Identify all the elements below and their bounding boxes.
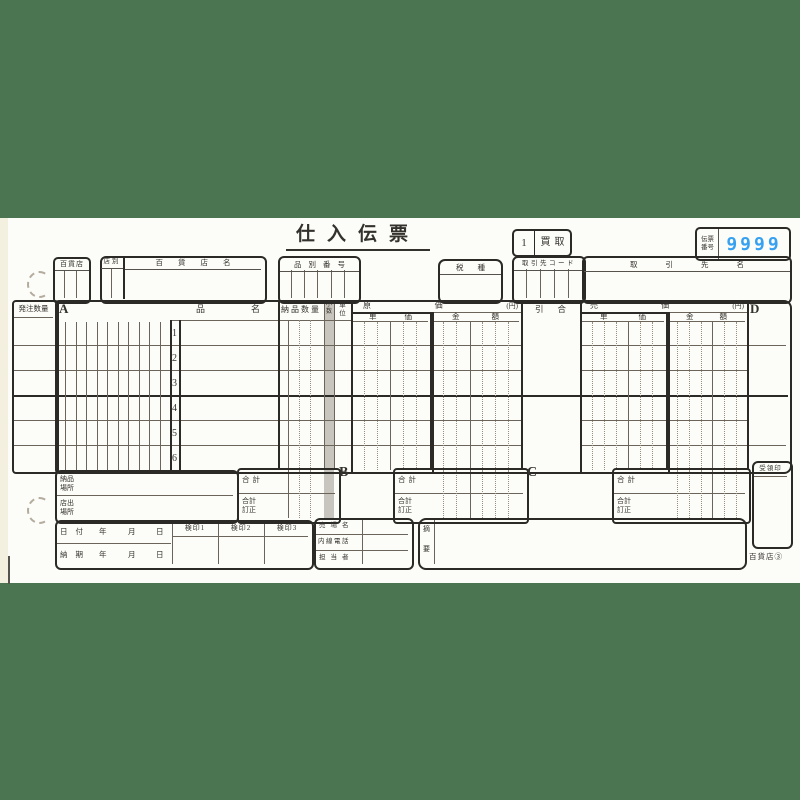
scanned-purchase-slip-screen: 仕入伝票 1 買取 伝票 番号 9999 百貨店 店別 百貨店名 品別番号 税種… bbox=[0, 0, 800, 800]
cost-amount-char2: 額 bbox=[492, 313, 500, 321]
delivery-qty-header: 納品数量 bbox=[278, 306, 324, 314]
item-name-char2: 名 bbox=[251, 305, 260, 314]
slip-number-label: 伝票 番号 bbox=[697, 229, 719, 259]
cost-char1: 原 bbox=[363, 302, 371, 310]
stamp1-label: 検印1 bbox=[172, 525, 218, 532]
total-fix-label-1: 合計 訂正 bbox=[242, 497, 256, 514]
section-d-label: D bbox=[750, 302, 759, 315]
total-label-3: 合計 bbox=[617, 476, 638, 484]
date-label: 日付 bbox=[60, 528, 91, 536]
stamp3-label: 検印3 bbox=[264, 525, 310, 532]
due-month: 月 bbox=[128, 551, 136, 559]
negotiation-char2: 合 bbox=[557, 305, 566, 314]
total-label-1: 合計 bbox=[242, 476, 263, 484]
cost-group-header: 原 価 (円) bbox=[351, 302, 521, 310]
sell-amount-char2: 額 bbox=[720, 313, 728, 321]
sales-floor-label: 売場名 bbox=[319, 523, 354, 530]
total-fix3-line2: 訂正 bbox=[617, 506, 631, 515]
due-label: 納期 bbox=[60, 551, 91, 559]
date-year: 年 bbox=[99, 528, 107, 536]
sell-amount-header: 金 額 bbox=[668, 313, 745, 321]
total-fix3-line1: 合計 bbox=[617, 497, 631, 506]
store-label: 百貨店 bbox=[55, 261, 89, 271]
form-title: 仕入伝票 bbox=[286, 225, 430, 251]
order-qty-label: 発注数量 bbox=[13, 305, 54, 313]
unit-char1: 単 bbox=[339, 302, 346, 310]
sell-unitprice-header: 単 価 bbox=[582, 313, 664, 321]
section-b-label: B bbox=[339, 466, 348, 480]
order-qty-column bbox=[12, 300, 59, 474]
slip-type-box: 1 買取 bbox=[512, 229, 572, 257]
slip-type-code: 1 bbox=[514, 231, 535, 255]
delivery-place-label: 納品 場所 bbox=[60, 475, 74, 492]
row-number-5: 5 bbox=[170, 429, 179, 439]
slip-number-label-line2: 番号 bbox=[701, 244, 714, 252]
cost-amount-char1: 金 bbox=[452, 313, 460, 321]
decimal-char2: 数 bbox=[326, 309, 332, 316]
paper-edge-mark bbox=[8, 556, 10, 584]
cost-yen-label: (円) bbox=[506, 303, 518, 310]
cost-amount-header: 金 額 bbox=[432, 313, 519, 321]
slip-number-label-line1: 伝票 bbox=[701, 236, 714, 244]
vendor-name-box: 取引先名 bbox=[582, 256, 792, 304]
sell-unitprice-char1: 単 bbox=[600, 313, 608, 321]
store-box: 百貨店 bbox=[53, 257, 91, 304]
section-c-label: C bbox=[527, 466, 537, 480]
ext-tel-label: 内線電話 bbox=[318, 539, 350, 546]
unit-header: 単 位 bbox=[334, 302, 351, 317]
punch-hole-top bbox=[27, 271, 52, 298]
item-number-label: 品別番号 bbox=[280, 261, 359, 272]
total-fix1-line2: 訂正 bbox=[242, 506, 256, 515]
sell-group-header: 売 価 (円) bbox=[580, 302, 747, 310]
vendor-name-label: 取引先名 bbox=[584, 261, 790, 272]
slip-number-value: 9999 bbox=[719, 234, 789, 255]
sell-unitprice-box bbox=[580, 312, 670, 474]
row-number-2: 2 bbox=[170, 354, 179, 364]
page-copy-label: 百貨店③ bbox=[749, 553, 783, 561]
sell-unitprice-char2: 価 bbox=[639, 313, 647, 321]
ship-place-label: 店出 場所 bbox=[60, 499, 74, 516]
store-name-label: 百貨店名 bbox=[125, 259, 261, 270]
receipt-stamp-box bbox=[752, 461, 793, 549]
date-month: 月 bbox=[128, 528, 136, 536]
cost-unitprice-header: 単 価 bbox=[353, 313, 428, 321]
date-day: 日 bbox=[156, 528, 164, 536]
due-day: 日 bbox=[156, 551, 164, 559]
total-fix-label-2: 合計 訂正 bbox=[398, 497, 412, 514]
due-year: 年 bbox=[99, 551, 107, 559]
row-number-1: 1 bbox=[170, 329, 179, 339]
vendor-code-box: 取引先コード bbox=[512, 256, 586, 304]
total-fix-label-3: 合計 訂正 bbox=[617, 497, 631, 514]
decimal-header: 小 数 bbox=[324, 302, 334, 316]
person-label: 担当者 bbox=[319, 555, 354, 562]
vendor-code-label: 取引先コード bbox=[514, 261, 584, 271]
sell-char2: 価 bbox=[661, 302, 669, 310]
total-fix2-line1: 合計 bbox=[398, 497, 412, 506]
remarks-char2: 要 bbox=[423, 546, 430, 553]
cost-unitprice-box bbox=[351, 312, 434, 474]
sell-yen-label: (円) bbox=[732, 303, 744, 310]
delivery-place-line1: 納品 bbox=[60, 475, 74, 484]
cost-unitprice-char1: 単 bbox=[369, 313, 377, 321]
total-fix1-line1: 合計 bbox=[242, 497, 256, 506]
cost-unitprice-char2: 価 bbox=[405, 313, 413, 321]
row-number-6: 6 bbox=[170, 454, 179, 464]
sell-char1: 売 bbox=[590, 302, 598, 310]
ship-place-line1: 店出 bbox=[60, 499, 74, 508]
tax-type-box: 税種 bbox=[438, 259, 503, 304]
item-name-header: 品 名 bbox=[196, 305, 260, 314]
section-a-label: A bbox=[59, 302, 68, 315]
decimal-char1: 小 bbox=[326, 302, 332, 309]
tax-type-label: 税種 bbox=[440, 264, 501, 275]
row-number-3: 3 bbox=[170, 379, 179, 389]
punch-hole-bottom bbox=[27, 497, 52, 524]
receipt-stamp-label: 受領印 bbox=[753, 466, 788, 473]
ship-place-line2: 場所 bbox=[60, 508, 74, 517]
delivery-place-line2: 場所 bbox=[60, 484, 74, 493]
remarks-box bbox=[418, 518, 747, 570]
sell-amount-char1: 金 bbox=[686, 313, 694, 321]
store-branch-label: 店別 bbox=[101, 259, 123, 269]
remarks-char1: 摘 bbox=[423, 526, 430, 533]
item-name-char1: 品 bbox=[196, 305, 205, 314]
stamp2-label: 検印2 bbox=[218, 525, 264, 532]
row-number-4: 4 bbox=[170, 404, 179, 414]
negotiation-header: 引 合 bbox=[521, 305, 580, 314]
delivery-place-box bbox=[55, 470, 239, 524]
total-fix2-line2: 訂正 bbox=[398, 506, 412, 515]
total-label-2: 合計 bbox=[398, 476, 419, 484]
paper-left-edge bbox=[0, 218, 8, 583]
negotiation-char1: 引 bbox=[535, 305, 544, 314]
item-number-box: 品別番号 bbox=[278, 256, 361, 304]
slip-type-label: 買取 bbox=[535, 238, 570, 248]
unit-char2: 位 bbox=[339, 310, 346, 318]
cost-char2: 価 bbox=[435, 302, 443, 310]
